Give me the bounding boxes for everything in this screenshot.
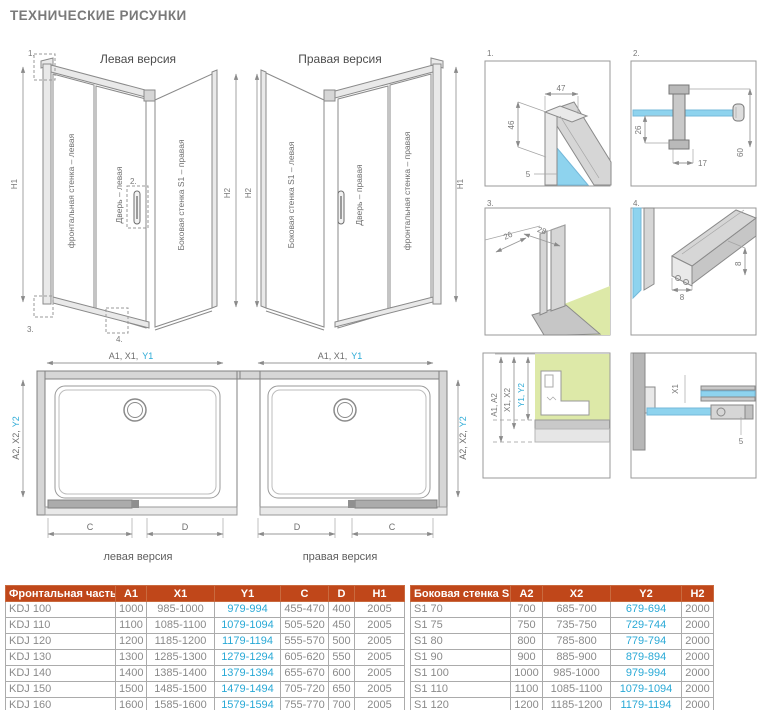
callout-3-label: 3. bbox=[27, 325, 34, 334]
dim-8-bottom-label: 8 bbox=[680, 293, 685, 302]
column-header: Y2 bbox=[611, 586, 682, 602]
callout-4-label: 4. bbox=[116, 335, 123, 344]
table-cell: 555-570 bbox=[281, 634, 329, 650]
table-cell: 2000 bbox=[682, 666, 714, 682]
detail-3-drawing: 3. 28 26 bbox=[484, 196, 612, 342]
table-cell: 600 bbox=[329, 666, 355, 682]
detail-4-label: 4. bbox=[633, 199, 640, 208]
page-title: ТЕХНИЧЕСКИЕ РИСУНКИ bbox=[10, 8, 187, 23]
dim-5-label: 5 bbox=[526, 170, 531, 179]
technical-drawings-page: ТЕХНИЧЕСКИЕ РИСУНКИ Левая версия H1 фрон… bbox=[0, 0, 769, 710]
door-handle bbox=[134, 191, 140, 224]
side-table-body: S1 70700685-700679-6942000S1 75750735-75… bbox=[411, 602, 714, 710]
plan-right-top-dim: A1, X1,Y1 bbox=[318, 351, 363, 361]
table-cell: 655-670 bbox=[281, 666, 329, 682]
panel-label-side-s1: Боковая стенка S1 – левая bbox=[286, 141, 296, 248]
table-cell: 985-1000 bbox=[147, 602, 215, 618]
table-cell: 605-620 bbox=[281, 650, 329, 666]
table-cell: KDJ 130 bbox=[6, 650, 116, 666]
table-cell: 2000 bbox=[682, 618, 714, 634]
table-cell: 985-1000 bbox=[543, 666, 611, 682]
door-handle-plan bbox=[132, 500, 139, 508]
tray-plan bbox=[37, 371, 240, 515]
dim-c-label: C bbox=[389, 522, 396, 532]
table-header-row: Фронтальная частьA1X1Y1CDH1 bbox=[6, 586, 405, 602]
table-cell: 750 bbox=[511, 618, 543, 634]
detail-4-drawing: 4. 8 8 bbox=[630, 196, 760, 342]
table-cell: 1079-1094 bbox=[611, 682, 682, 698]
table-cell: 400 bbox=[329, 602, 355, 618]
dim-y1-y2-label: Y1, Y2 bbox=[517, 383, 526, 407]
dim-17-label: 17 bbox=[698, 159, 707, 168]
dim-c-label: C bbox=[87, 522, 94, 532]
callout-1-label: 1. bbox=[28, 49, 35, 58]
table-cell: 1500 bbox=[116, 682, 147, 698]
table-cell: 650 bbox=[329, 682, 355, 698]
table-cell: 979-994 bbox=[611, 666, 682, 682]
table-cell: 1479-1494 bbox=[215, 682, 281, 698]
table-cell: 1200 bbox=[511, 698, 543, 710]
detail-3-label: 3. bbox=[487, 199, 494, 208]
dim-47-label: 47 bbox=[557, 84, 566, 93]
table-cell: 885-900 bbox=[543, 650, 611, 666]
panel-label-door-right: Дверь – правая bbox=[354, 164, 364, 226]
table-cell: 1085-1100 bbox=[147, 618, 215, 634]
iso-right-drawing: Правая версия H2 Боковая стенка S1 – лев… bbox=[248, 45, 470, 350]
plan-left-caption: левая версия bbox=[104, 551, 173, 563]
table-cell: 900 bbox=[511, 650, 543, 666]
plan-right-drawing: A1, X1,Y1 D C A2, X2,Y2 правая версия bbox=[240, 350, 470, 568]
table-cell: S1 120 bbox=[411, 698, 511, 710]
h1-dim-label: H1 bbox=[456, 178, 465, 189]
table-cell: 2000 bbox=[682, 602, 714, 618]
door-handle bbox=[338, 191, 344, 224]
table-row: KDJ 15015001485-15001479-1494705-7206502… bbox=[6, 682, 405, 698]
table-cell: 1400 bbox=[116, 666, 147, 682]
table-cell: KDJ 120 bbox=[6, 634, 116, 650]
table-cell: 1100 bbox=[116, 618, 147, 634]
column-header: H1 bbox=[355, 586, 405, 602]
table-cell: 1385-1400 bbox=[147, 666, 215, 682]
column-header: Боковая стенка S1 bbox=[411, 586, 511, 602]
detail-1-drawing: 1. 47 46 5 bbox=[484, 46, 612, 188]
table-cell: KDJ 160 bbox=[6, 698, 116, 710]
dim-d-label: D bbox=[294, 522, 301, 532]
front-table-body: KDJ 1001000985-1000979-994455-4704002005… bbox=[6, 602, 405, 710]
dim-8-right-label: 8 bbox=[734, 261, 743, 266]
table-cell: 1600 bbox=[116, 698, 147, 710]
table-cell: KDJ 140 bbox=[6, 666, 116, 682]
column-header: X1 bbox=[147, 586, 215, 602]
iso-left-caption: Левая версия bbox=[100, 52, 176, 66]
table-cell: 1000 bbox=[116, 602, 147, 618]
tray-plan bbox=[240, 371, 447, 515]
table-cell: 785-800 bbox=[543, 634, 611, 650]
panel-label-door-left: Дверь – левая bbox=[114, 166, 124, 223]
table-cell: 1079-1094 bbox=[215, 618, 281, 634]
table-cell: 1100 bbox=[511, 682, 543, 698]
plan-section-detail: X1 5 bbox=[630, 345, 760, 480]
table-row: KDJ 16016001585-16001579-1594755-7707002… bbox=[6, 698, 405, 710]
callout-2-label: 2. bbox=[130, 177, 137, 186]
h2-dim-label: H2 bbox=[223, 187, 232, 198]
detail-2-label: 2. bbox=[633, 49, 640, 58]
dim-a1-a2-label: A1, A2 bbox=[490, 393, 499, 417]
table-cell: 735-750 bbox=[543, 618, 611, 634]
h2-dim-label: H2 bbox=[244, 187, 253, 198]
table-row: KDJ 14014001385-14001379-1394655-6706002… bbox=[6, 666, 405, 682]
table-row: S1 11011001085-11001079-10942000 bbox=[411, 682, 714, 698]
table-cell: 2005 bbox=[355, 634, 405, 650]
table-row: KDJ 12012001185-12001179-1194555-5705002… bbox=[6, 634, 405, 650]
table-cell: 1285-1300 bbox=[147, 650, 215, 666]
table-cell: 1300 bbox=[116, 650, 147, 666]
dim-26-label: 26 bbox=[634, 125, 643, 134]
table-cell: 2000 bbox=[682, 650, 714, 666]
table-cell: S1 100 bbox=[411, 666, 511, 682]
table-cell: 1585-1600 bbox=[147, 698, 215, 710]
table-row: KDJ 13013001285-13001279-1294605-6205502… bbox=[6, 650, 405, 666]
table-cell: 1000 bbox=[511, 666, 543, 682]
panel-label-front-right: фронтальная стенка – правая bbox=[402, 131, 412, 250]
table-row: S1 1001000985-1000979-9942000 bbox=[411, 666, 714, 682]
table-cell: S1 70 bbox=[411, 602, 511, 618]
front-section-table: Фронтальная частьA1X1Y1CDH1 KDJ 10010009… bbox=[5, 585, 405, 710]
column-header: A2 bbox=[511, 586, 543, 602]
table-cell: 705-720 bbox=[281, 682, 329, 698]
table-row: S1 90900885-900879-8942000 bbox=[411, 650, 714, 666]
table-cell: 2000 bbox=[682, 682, 714, 698]
table-cell: 1185-1200 bbox=[543, 698, 611, 710]
column-header: A1 bbox=[116, 586, 147, 602]
wall-profile-section: A1, A2 X1, X2 Y1, Y2 bbox=[483, 345, 611, 480]
table-row: S1 80800785-800779-7942000 bbox=[411, 634, 714, 650]
table-cell: 2005 bbox=[355, 682, 405, 698]
table-cell: 550 bbox=[329, 650, 355, 666]
h1-dim-label: H1 bbox=[10, 178, 19, 189]
table-cell: 1200 bbox=[116, 634, 147, 650]
table-cell: 1179-1194 bbox=[215, 634, 281, 650]
column-header: Y1 bbox=[215, 586, 281, 602]
table-cell: 800 bbox=[511, 634, 543, 650]
table-row: S1 12012001185-12001179-11942000 bbox=[411, 698, 714, 710]
table-cell: 729-744 bbox=[611, 618, 682, 634]
table-cell: S1 80 bbox=[411, 634, 511, 650]
table-cell: KDJ 100 bbox=[6, 602, 116, 618]
table-cell: 1179-1194 bbox=[611, 698, 682, 710]
dim-d-label: D bbox=[182, 522, 189, 532]
table-cell: 1279-1294 bbox=[215, 650, 281, 666]
column-header: X2 bbox=[543, 586, 611, 602]
table-row: KDJ 1001000985-1000979-994455-4704002005 bbox=[6, 602, 405, 618]
table-cell: KDJ 150 bbox=[6, 682, 116, 698]
dim-5-label: 5 bbox=[739, 437, 744, 446]
panel-label-front-left: фронтальная стенка – левая bbox=[66, 133, 76, 248]
table-cell: 700 bbox=[511, 602, 543, 618]
detail-1-label: 1. bbox=[487, 49, 494, 58]
iso-left-drawing: Левая версия H1 фронтальная стенка – лев… bbox=[8, 45, 248, 350]
plan-right-caption: правая версия bbox=[303, 551, 378, 563]
dim-x1-label: X1 bbox=[671, 384, 680, 394]
table-cell: 2005 bbox=[355, 698, 405, 710]
table-cell: 679-694 bbox=[611, 602, 682, 618]
column-header: D bbox=[329, 586, 355, 602]
table-cell: 450 bbox=[329, 618, 355, 634]
table-cell: 685-700 bbox=[543, 602, 611, 618]
table-cell: 1085-1100 bbox=[543, 682, 611, 698]
side-wall-table: Боковая стенка S1A2X2Y2H2 S1 70700685-70… bbox=[410, 585, 714, 710]
column-header: C bbox=[281, 586, 329, 602]
column-header: H2 bbox=[682, 586, 714, 602]
table-cell: 2005 bbox=[355, 618, 405, 634]
table-cell: 879-894 bbox=[611, 650, 682, 666]
table-cell: 505-520 bbox=[281, 618, 329, 634]
table-cell: 2005 bbox=[355, 650, 405, 666]
panel-label-side-s1: Боковая стенка S1 – правая bbox=[176, 139, 186, 250]
table-cell: 2005 bbox=[355, 602, 405, 618]
iso-right-caption: Правая версия bbox=[298, 52, 382, 66]
table-row: KDJ 11011001085-11001079-1094505-5204502… bbox=[6, 618, 405, 634]
table-cell: 2005 bbox=[355, 666, 405, 682]
dim-46-label: 46 bbox=[507, 120, 516, 129]
plan-left-top-dim: A1, X1,Y1 bbox=[109, 351, 154, 361]
sliding-door-plan bbox=[355, 500, 437, 508]
table-cell: 1185-1200 bbox=[147, 634, 215, 650]
sliding-door-plan bbox=[48, 500, 132, 508]
table-header-row: Боковая стенка S1A2X2Y2H2 bbox=[411, 586, 714, 602]
table-cell: KDJ 110 bbox=[6, 618, 116, 634]
plan-left-side-dim: A2, X2,Y2 bbox=[11, 416, 21, 460]
table-cell: 700 bbox=[329, 698, 355, 710]
table-cell: 1379-1394 bbox=[215, 666, 281, 682]
table-cell: 755-770 bbox=[281, 698, 329, 710]
table-cell: 455-470 bbox=[281, 602, 329, 618]
table-cell: S1 75 bbox=[411, 618, 511, 634]
table-cell: 1579-1594 bbox=[215, 698, 281, 710]
table-cell: S1 90 bbox=[411, 650, 511, 666]
dim-60-label: 60 bbox=[736, 148, 745, 157]
door-handle-plan bbox=[348, 500, 355, 508]
plan-right-side-dim: A2, X2,Y2 bbox=[458, 416, 468, 460]
table-row: S1 75750735-750729-7442000 bbox=[411, 618, 714, 634]
detail-2-drawing: 2. 26 17 60 bbox=[630, 46, 760, 188]
plan-left-drawing: A1, X1,Y1 C D A2, X2,Y2 левая версия bbox=[8, 350, 240, 568]
table-cell: 2000 bbox=[682, 698, 714, 710]
table-cell: 500 bbox=[329, 634, 355, 650]
table-cell: 2000 bbox=[682, 634, 714, 650]
column-header: Фронтальная часть bbox=[6, 586, 116, 602]
table-cell: 1485-1500 bbox=[147, 682, 215, 698]
table-cell: 779-794 bbox=[611, 634, 682, 650]
table-row: S1 70700685-700679-6942000 bbox=[411, 602, 714, 618]
dim-x1-x2-label: X1, X2 bbox=[503, 387, 512, 412]
table-cell: 979-994 bbox=[215, 602, 281, 618]
table-cell: S1 110 bbox=[411, 682, 511, 698]
